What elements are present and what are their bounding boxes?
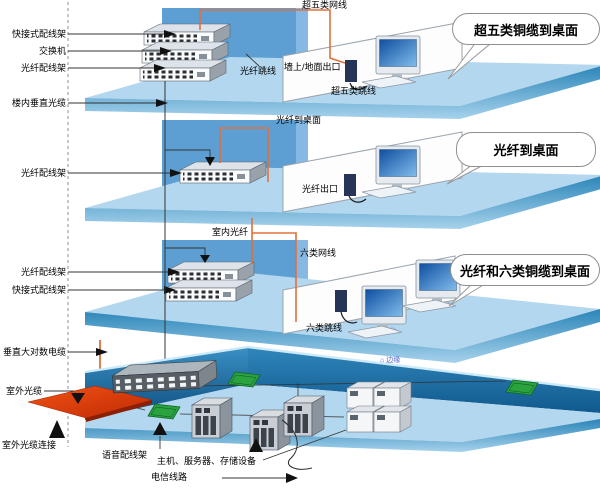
label-f3-fiber-patch-panel: 光纤配线架: [2, 267, 66, 277]
callout-cat5e-to-desktop: 超五类铜缆到桌面: [452, 13, 600, 45]
basement-group: [28, 347, 600, 483]
label-f2-fiber-patch-panel: 光纤配线架: [2, 168, 66, 178]
callout-fiber-cat6-to-desktop: 光纤和六类铜缆到桌面: [450, 254, 600, 286]
label-servers: 主机、服务器、存储设备: [157, 456, 256, 466]
label-f1-quick-patch-panel: 快接式配线架: [2, 29, 66, 39]
diagram-canvas: [0, 0, 600, 490]
label-f1-wall-outlet: 墙上/地面出口: [284, 62, 341, 72]
watermark-text: 边缘: [386, 355, 400, 365]
label-telecom-line: 电信线路: [151, 472, 187, 482]
label-f1-cat5e-cable: 超五类网线: [302, 0, 347, 10]
label-voice-patch-panel: 语音配线架: [102, 450, 147, 460]
label-outdoor-fiber-connect: 室外光缆连接: [2, 440, 56, 450]
label-f3-cat6-cable: 六类网线: [300, 248, 336, 258]
watermark-icon: ⌂: [380, 357, 384, 364]
floor1-fiber-patch-panel-device: [140, 60, 226, 81]
server-rack-3: [284, 396, 324, 436]
floor2-fiber-patch-panel-device: [180, 162, 266, 183]
label-f3-indoor-fiber: 室内光纤: [212, 227, 248, 237]
cabling-diagram: 快接式配线架 交换机 光纤配线架 楼内垂直光缆 光纤配线架 光纤配线架 快接式配…: [0, 0, 600, 490]
label-f1-fiber-patch-panel: 光纤配线架: [2, 63, 66, 73]
server-rack-1: [192, 398, 232, 438]
label-f3-cat6-jumper: 六类跳线: [306, 323, 342, 333]
floor3-group: [68, 218, 600, 363]
floor3-cat6-outlet-box: [335, 290, 347, 312]
label-f1-fiber-jumper: 光纤跳线: [240, 66, 276, 76]
callout-fiber-to-desktop: 光纤到桌面: [456, 132, 596, 167]
storage-cabinet: [374, 406, 411, 432]
label-riser-copper: 垂直大对数电缆: [0, 347, 66, 357]
label-riser-fiber: 楼内垂直光缆: [2, 98, 66, 108]
floor3-quick-patch-panel-device: [166, 280, 252, 301]
watermark: ⌂ 边缘: [380, 355, 400, 365]
floor2-fiber-outlet-box: [344, 174, 356, 196]
label-f1-cat5e-jumper: 超五类跳线: [331, 86, 376, 96]
label-f2-fiber-to-desk: 光纤到桌面: [276, 115, 321, 125]
floor1-wall-outlet-box: [345, 60, 357, 82]
label-outdoor-fiber: 室外光缆: [2, 386, 42, 396]
label-f3-quick-patch-panel: 快接式配线架: [2, 285, 66, 295]
label-f1-switch: 交换机: [2, 46, 66, 56]
label-f2-fiber-outlet: 光纤出口: [302, 184, 338, 194]
storage-cabinet: [374, 382, 411, 408]
